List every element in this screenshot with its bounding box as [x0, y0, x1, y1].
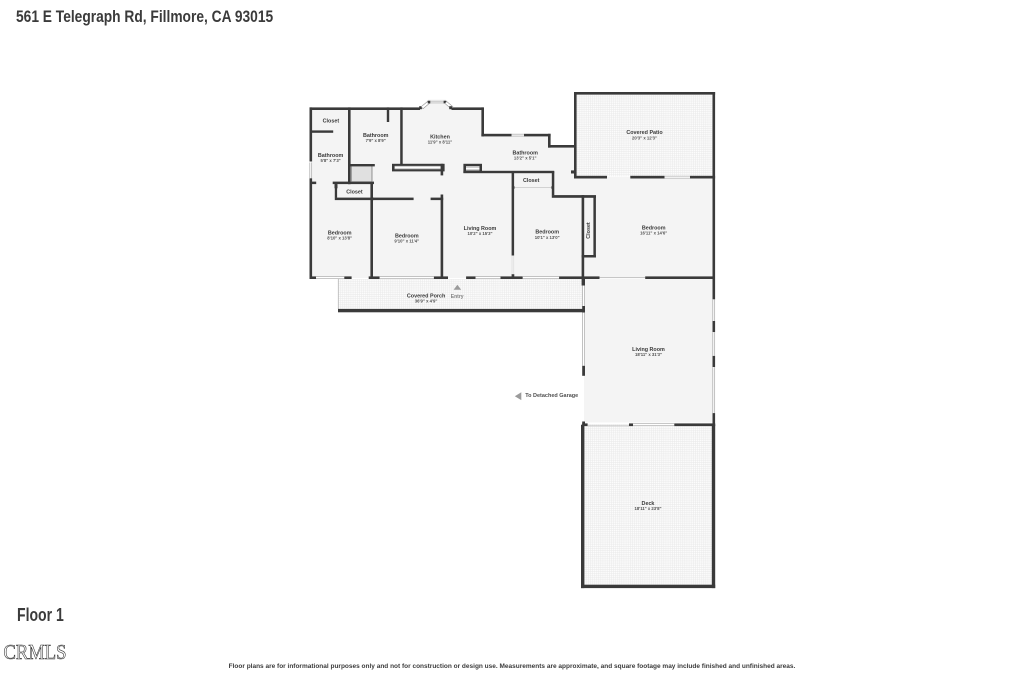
svg-text:Closet: Closet	[523, 178, 540, 184]
svg-text:13'2" x 5'1": 13'2" x 5'1"	[514, 156, 537, 161]
svg-text:18'11" x 23'8": 18'11" x 23'8"	[634, 506, 661, 511]
svg-text:5'8" x 7'3": 5'8" x 7'3"	[320, 158, 340, 163]
svg-text:Closet: Closet	[323, 119, 340, 125]
svg-text:8'10" x 13'8": 8'10" x 13'8"	[327, 235, 352, 240]
svg-text:9'10" x 11'4": 9'10" x 11'4"	[394, 239, 419, 244]
svg-text:To Detached Garage: To Detached Garage	[525, 393, 579, 399]
svg-text:Entry: Entry	[451, 294, 464, 300]
svg-text:18'11" x 31'3": 18'11" x 31'3"	[635, 352, 662, 357]
svg-text:10'1" x 13'0": 10'1" x 13'0"	[535, 235, 560, 240]
svg-text:16'11" x 14'6": 16'11" x 14'6"	[640, 231, 667, 236]
svg-text:20'3" x 12'3": 20'3" x 12'3"	[632, 135, 657, 140]
svg-text:10'2" x 15'3": 10'2" x 15'3"	[468, 231, 493, 236]
svg-text:Closet: Closet	[346, 190, 363, 196]
svg-text:36'9" x 4'9": 36'9" x 4'9"	[415, 299, 438, 304]
svg-text:7'9" x 8'9": 7'9" x 8'9"	[366, 138, 386, 143]
svg-text:11'9" x 8'11": 11'9" x 8'11"	[428, 140, 453, 145]
svg-text:Closet: Closet	[586, 222, 592, 239]
